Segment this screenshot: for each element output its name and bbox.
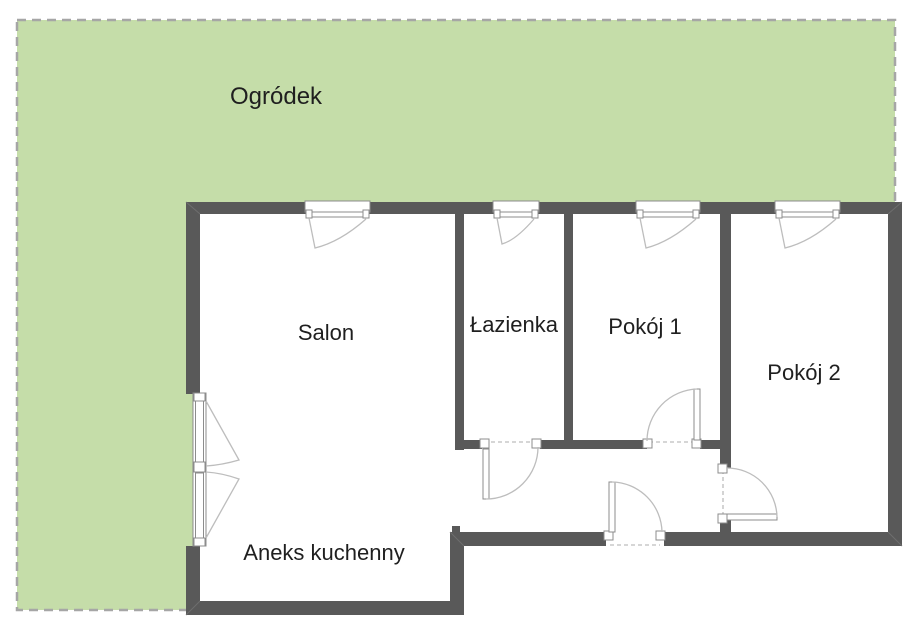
wall-nub (452, 526, 460, 532)
window-frame (305, 201, 370, 212)
window-hinge-right (532, 210, 538, 218)
door-leaf (483, 449, 489, 499)
door-leaf (727, 514, 777, 520)
room-label-pokoj-1: Pokój 1 (608, 314, 681, 339)
door-leaf (694, 389, 700, 440)
window-hinge-right (363, 210, 369, 218)
balcony-door-cap-middle (194, 462, 205, 472)
door-latch-post (532, 439, 541, 448)
door-hinge-post (718, 514, 727, 523)
window-hinge-right (693, 210, 699, 218)
wall-left-upper (186, 202, 200, 394)
window-hinge-left (776, 210, 782, 218)
door-hinge-post (480, 439, 489, 448)
door-latch-post (718, 464, 727, 473)
room-label-pokoj-2: Pokój 2 (767, 360, 840, 385)
room-label-aneks-kuchenny: Aneks kuchenny (243, 540, 404, 565)
room-label-lazienka: Łazienka (470, 312, 559, 337)
balcony-door-cap-top (194, 393, 205, 401)
wall-corridor-top-b (540, 440, 647, 449)
wall-corridor-bottom (450, 532, 902, 546)
window-sill (639, 212, 697, 217)
window-frame (636, 201, 700, 212)
floor-plan-canvas: Ogródek (0, 0, 910, 636)
door-latch-post (656, 531, 665, 540)
window-sill (496, 212, 536, 217)
room-label-salon: Salon (298, 320, 354, 345)
wall-corridor-top-a (455, 440, 482, 449)
wall-pokoj1-pokoj2 (720, 214, 731, 468)
door-leaf (609, 482, 615, 532)
wall-right (888, 202, 902, 546)
garden-label: Ogródek (230, 83, 323, 110)
wall-salon-lazienka (455, 214, 464, 450)
window-hinge-left (494, 210, 500, 218)
wall-bottom (186, 601, 464, 615)
balcony-door-cap-bottom (194, 538, 205, 546)
window-hinge-left (637, 210, 643, 218)
window-sill (778, 212, 837, 217)
balcony-door-leaf-bottom (196, 473, 204, 538)
wall-left-lower (186, 546, 200, 615)
window-hinge-right (833, 210, 839, 218)
balcony-door-leaf-top (196, 401, 204, 462)
wall-corridor-top-c (700, 440, 731, 449)
wall-lazienka-pokoj1 (564, 214, 573, 449)
apartment-floor (186, 202, 910, 636)
window-hinge-left (306, 210, 312, 218)
window-sill (308, 212, 367, 217)
window-frame (775, 201, 840, 212)
